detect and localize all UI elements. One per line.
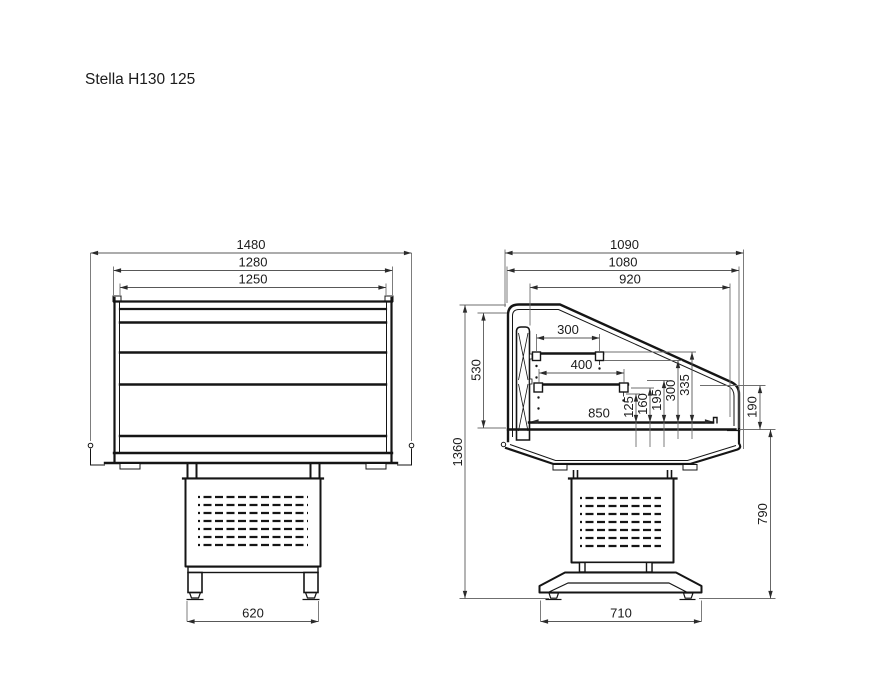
- dim-label-710: 710: [610, 606, 632, 621]
- dim-front-feet-width: 620: [187, 601, 319, 622]
- side-bottom-shell: [501, 430, 740, 470]
- dim-label-1090: 1090: [610, 237, 639, 252]
- dim-label-400-shelf: 400: [571, 357, 593, 372]
- dim-label-160: 160: [635, 393, 650, 415]
- side-pedestal: [569, 470, 677, 572]
- dim-label-300-shelf: 300: [557, 322, 579, 337]
- side-lower-shelf: [534, 383, 628, 410]
- dim-overall-height: 1360: [450, 305, 549, 599]
- side-view: [501, 305, 740, 600]
- dim-front-inner-width: 1250: [120, 272, 386, 296]
- side-ventilation-grille: [580, 498, 661, 546]
- dim-label-190: 190: [745, 396, 760, 418]
- drawing-title: Stella H130 125: [85, 71, 195, 88]
- dim-label-620: 620: [242, 606, 264, 621]
- front-deck-band: [105, 453, 397, 469]
- dim-inner-height: 530: [469, 313, 508, 428]
- dim-label-1080: 1080: [609, 255, 638, 270]
- dim-side-canopy-depth: 920: [530, 272, 730, 418]
- front-view: [88, 253, 414, 600]
- front-cabinet-shelf-lines: [114, 302, 392, 437]
- technical-drawing: Stella H130 125: [0, 0, 874, 700]
- dim-label-195: 195: [649, 389, 664, 411]
- dim-label-300-height: 300: [663, 380, 678, 402]
- side-base: [540, 573, 702, 600]
- dim-label-530: 530: [469, 359, 484, 381]
- front-pedestal: [183, 464, 323, 573]
- dim-label-850: 850: [588, 406, 610, 421]
- dim-base-depth: 710: [541, 601, 702, 622]
- drawing-page: Stella H130 125: [0, 0, 874, 700]
- front-bumper-right: [397, 253, 414, 465]
- front-bumper-left: [88, 253, 105, 465]
- side-deck: [508, 418, 736, 430]
- dim-understructure-height: 790: [699, 430, 776, 599]
- dim-label-920: 920: [619, 272, 641, 287]
- dim-label-1250: 1250: [239, 272, 268, 287]
- side-upper-shelf: [533, 352, 604, 379]
- dim-front-overall-width: 1480: [91, 237, 412, 253]
- dim-label-1480: 1480: [237, 237, 266, 252]
- dim-label-790: 790: [755, 503, 770, 525]
- dim-upper-shelf-depth: 300: [537, 322, 600, 351]
- dim-label-1360: 1360: [450, 438, 465, 467]
- dim-label-125: 125: [621, 396, 636, 418]
- front-legs: [187, 573, 320, 600]
- dim-label-1280: 1280: [239, 255, 268, 270]
- dim-label-335: 335: [677, 374, 692, 396]
